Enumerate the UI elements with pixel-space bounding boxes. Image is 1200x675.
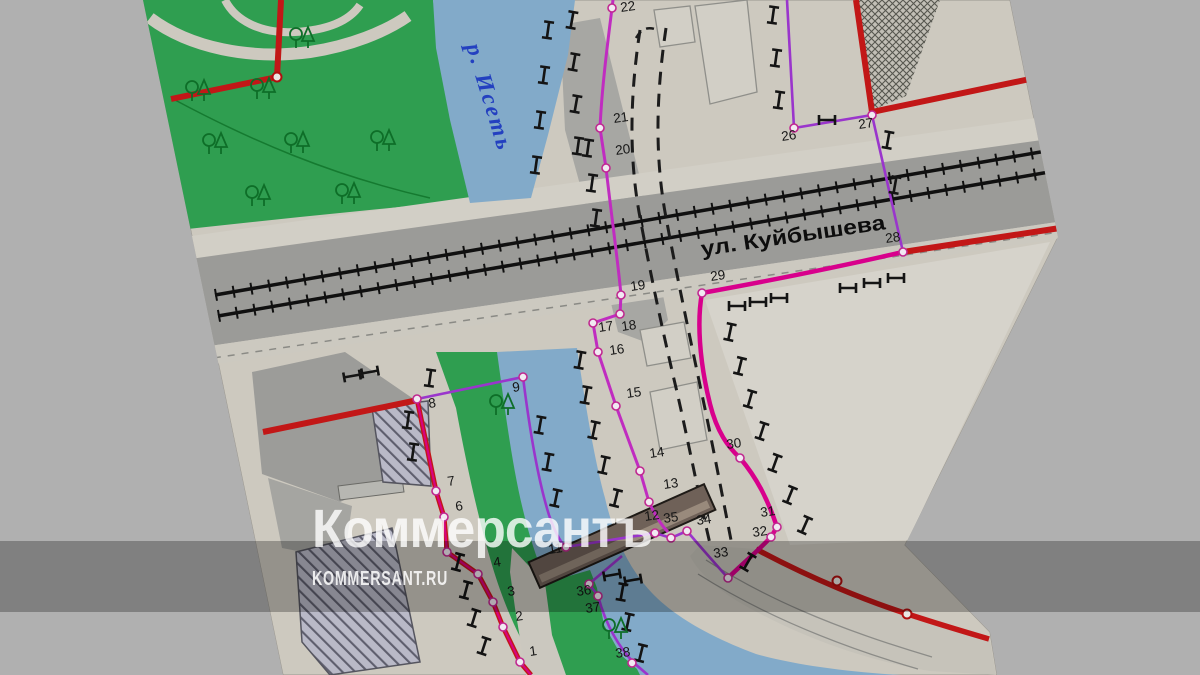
boundary-point-number: 13: [662, 475, 679, 492]
kommersant-logo: Коммерсантъ: [312, 499, 652, 559]
boundary-point-number: 17: [597, 318, 614, 335]
boundary-point-marker: [736, 454, 744, 462]
boundary-point-number: 30: [725, 435, 742, 452]
boundary-point-number: 34: [695, 511, 712, 528]
boundary-point-marker: [589, 319, 597, 327]
boundary-point-marker: [596, 124, 604, 132]
boundary-point-marker: [516, 658, 524, 666]
boundary-point-number: 27: [857, 115, 874, 132]
boundary-point-marker: [413, 395, 421, 403]
city-plan-map: 1234678911121314151617181920212226272829…: [0, 0, 1200, 675]
boundary-point-marker: [612, 402, 620, 410]
boundary-point-marker: [667, 534, 675, 542]
boundary-point-number: 16: [608, 341, 625, 358]
boundary-point-marker: [594, 348, 602, 356]
park-area: [142, 0, 478, 233]
boundary-point-marker: [698, 289, 706, 297]
article-image: 1234678911121314151617181920212226272829…: [0, 0, 1200, 675]
red-line-node: [273, 73, 282, 82]
boundary-point-marker: [683, 527, 691, 535]
boundary-point-number: 32: [751, 523, 768, 540]
boundary-point-marker: [519, 373, 527, 381]
boundary-point-number: 14: [648, 444, 665, 461]
boundary-point-marker: [651, 529, 659, 537]
boundary-point-number: 31: [759, 503, 776, 520]
boundary-point-number: 15: [625, 384, 642, 401]
boundary-point-marker: [432, 487, 440, 495]
boundary-point-marker: [617, 291, 625, 299]
boundary-point-number: 18: [620, 317, 637, 334]
boundary-point-number: 29: [709, 267, 726, 284]
boundary-point-number: 38: [614, 644, 631, 661]
boundary-point-number: 28: [884, 229, 901, 246]
boundary-point-marker: [602, 164, 610, 172]
boundary-point-number: 22: [619, 0, 636, 15]
boundary-point-marker: [499, 623, 507, 631]
boundary-point-marker: [767, 533, 775, 541]
boundary-point-marker: [899, 248, 907, 256]
boundary-point-number: 20: [614, 141, 631, 158]
boundary-point-marker: [608, 4, 616, 12]
boundary-point-number: 26: [780, 127, 797, 144]
boundary-point-number: 21: [612, 109, 629, 126]
boundary-point-marker: [773, 523, 781, 531]
boundary-point-number: 19: [629, 277, 646, 294]
boundary-point-marker: [616, 310, 624, 318]
boundary-point-number: 35: [662, 509, 679, 526]
boundary-point-marker: [628, 659, 636, 667]
kommersant-site-label: KOMMERSANT.RU: [312, 567, 448, 590]
boundary-point-marker: [636, 467, 644, 475]
